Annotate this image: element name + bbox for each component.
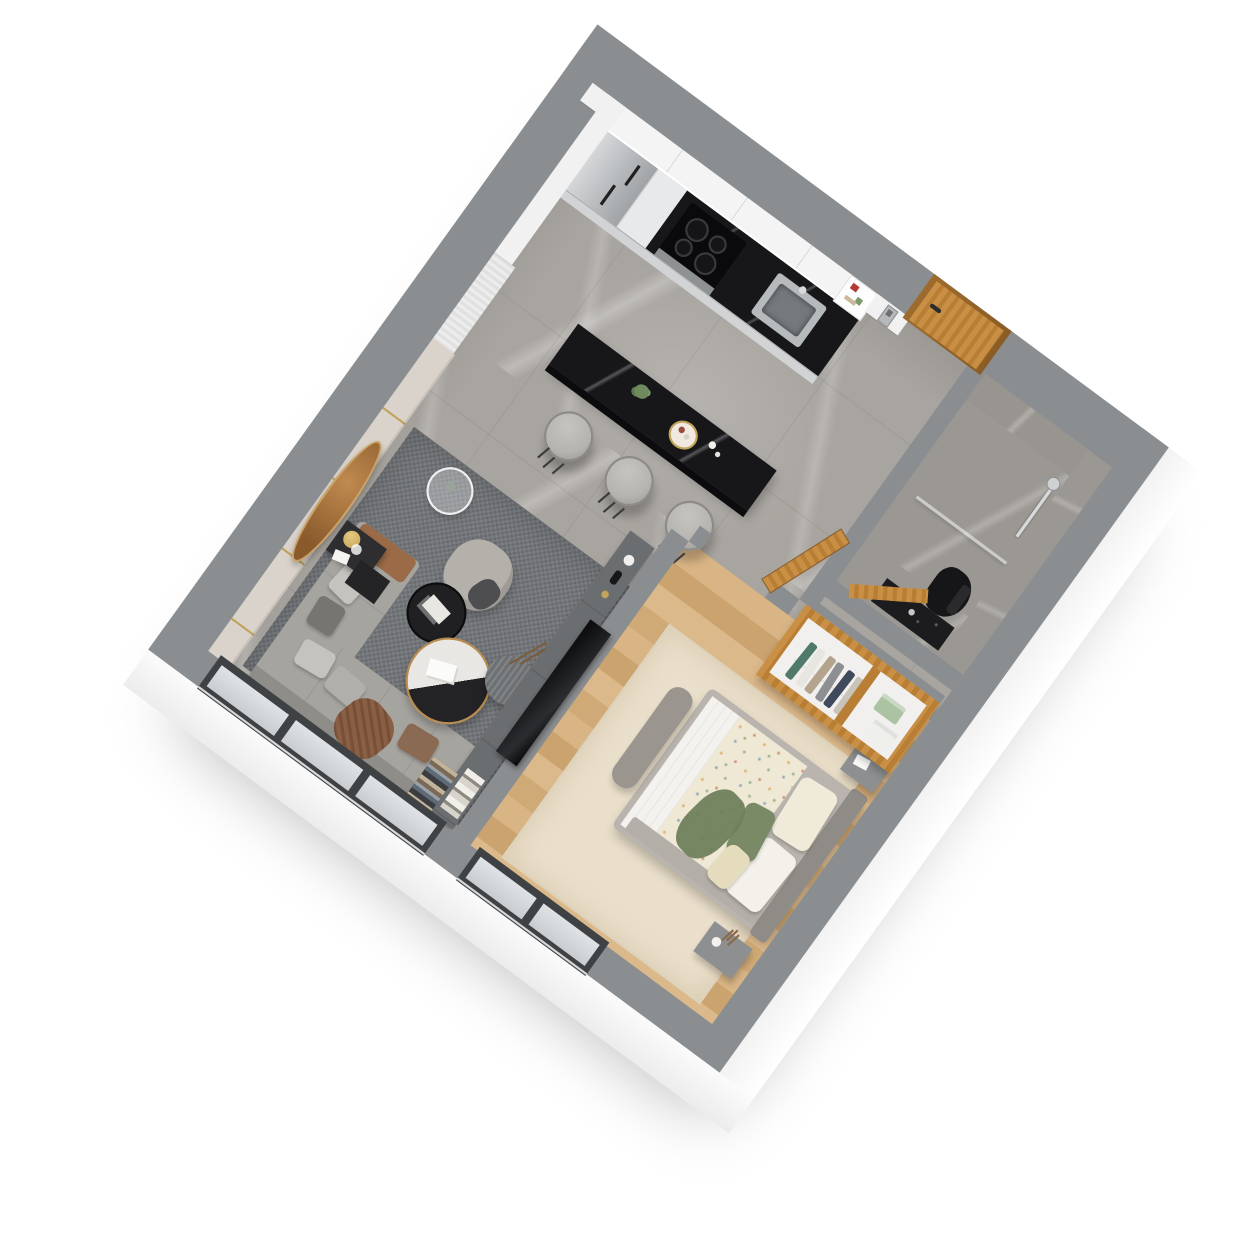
red-accessory	[850, 283, 860, 293]
shelf-books	[844, 295, 857, 306]
apartment-floorplan	[181, 67, 1139, 1051]
render-canvas	[0, 0, 1240, 1240]
door-handle	[929, 303, 942, 314]
